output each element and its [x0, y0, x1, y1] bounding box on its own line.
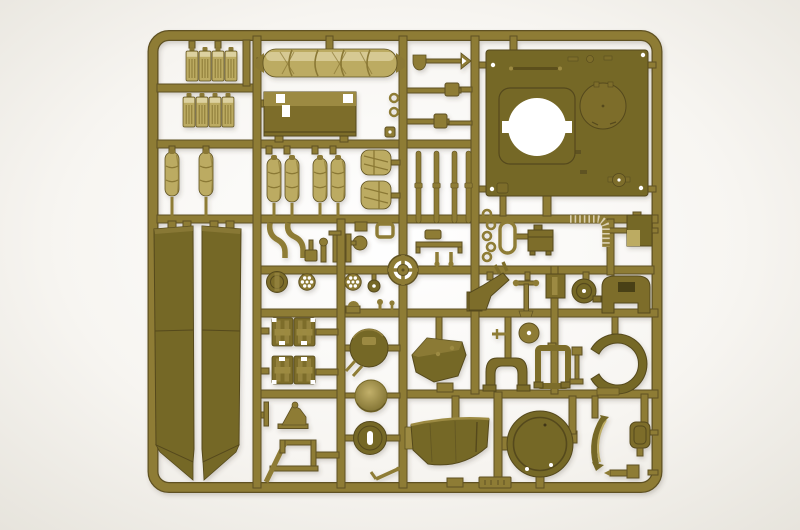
stowage-bin: [264, 92, 356, 136]
side-skirt-left: [154, 226, 194, 462]
photo-of-model-sprue: [0, 0, 800, 530]
round-hatch-small: [267, 272, 288, 293]
engine-box: [528, 225, 553, 255]
hatch-cover: [580, 82, 626, 129]
sprue-gate-plates: [447, 477, 511, 488]
hatch-with-slot: [354, 422, 387, 455]
turret-roof-plate: [486, 50, 648, 196]
knurled-pin: [320, 238, 328, 262]
access-panel: [627, 212, 652, 246]
spoked-wheel-1: [299, 274, 315, 290]
hub-wheel: [368, 280, 380, 292]
slotted-box: [546, 274, 565, 298]
dome-cover: [355, 380, 387, 412]
drive-sprocket: [388, 255, 418, 285]
hatch-opening: [508, 98, 566, 156]
tarpaulin-roll: [255, 49, 405, 77]
hatch-ring-large: [507, 411, 573, 477]
sprue-photo-canvas: [0, 0, 800, 530]
spoked-wheel-2: [345, 274, 361, 290]
